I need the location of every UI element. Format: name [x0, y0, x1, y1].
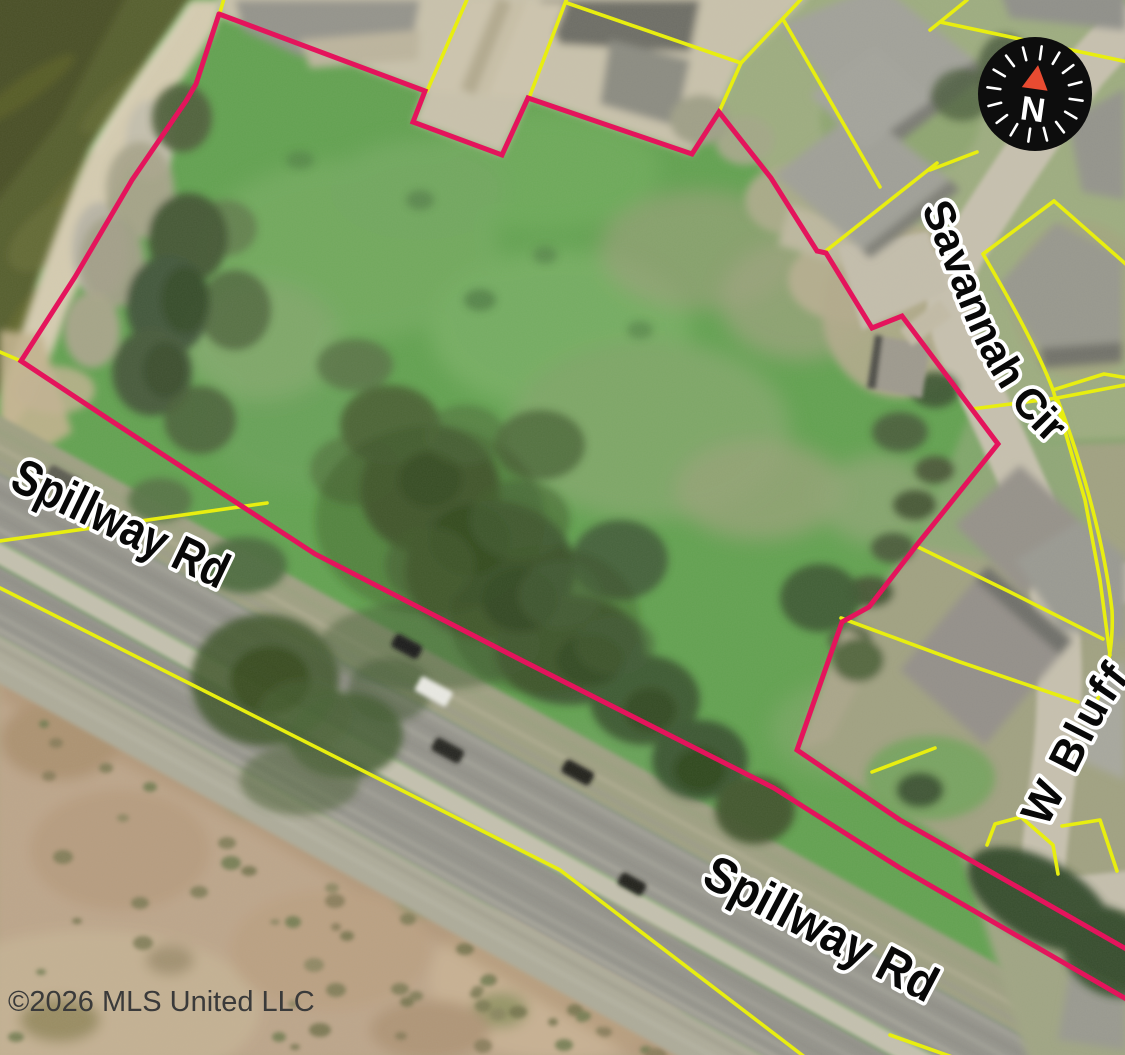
svg-text:©2026 MLS United LLC: ©2026 MLS United LLC	[8, 986, 315, 1018]
svg-text:N: N	[1018, 89, 1048, 130]
